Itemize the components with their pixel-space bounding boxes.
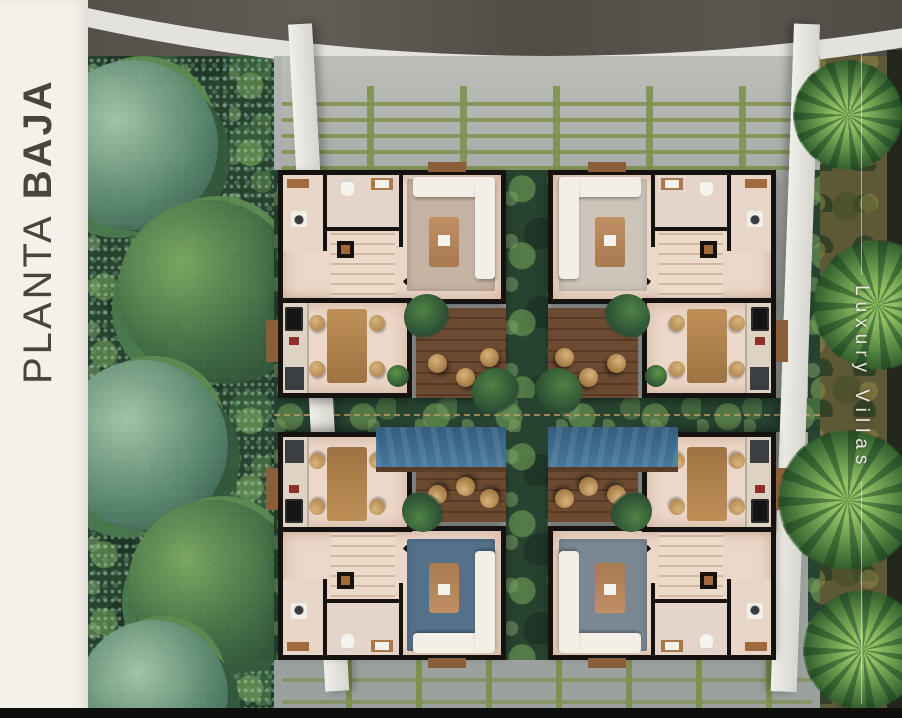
bathroom [327,599,403,655]
kitchen-counter [745,303,771,393]
pouf [579,477,598,496]
side-porch [266,320,278,362]
garden-bush [402,490,444,532]
interior-wall [399,583,403,603]
pouf [480,348,499,367]
lot-divider-line [274,414,820,416]
stair-planter [700,572,717,589]
rule-bottom [861,481,862,704]
dining-table [327,309,367,383]
shelf [745,179,767,188]
villa-bottom-right [548,432,776,660]
bottom-road-strip [0,708,902,718]
utility-room [727,175,771,251]
dining-chair [309,361,325,377]
sofa [559,177,579,279]
toilet [341,179,354,196]
stove [751,499,769,523]
tray [438,584,450,595]
title-space [16,199,60,213]
kitchen-counter [283,303,309,393]
pouf [555,348,574,367]
page-title: PLANTA BAJA [16,24,61,384]
shelf [745,642,767,651]
wine-cabinet [289,337,299,345]
tray [604,235,616,246]
rear-walkway [282,660,812,708]
staircase [659,533,723,597]
stove [751,307,769,331]
title-word-planta: PLANTA [16,213,60,384]
toilet [700,179,713,196]
toilet [341,634,354,651]
wood-deck [548,308,638,398]
villa-main-floor [278,526,506,660]
stove [285,307,303,331]
wood-deck [416,472,506,522]
dining-chair [369,315,385,331]
utility-room [283,175,327,251]
wine-cabinet [755,485,765,493]
toilet [700,634,713,651]
stair-planter [337,572,354,589]
villa-kitchen-wing [278,298,412,398]
pouf [555,489,574,508]
utility-room [283,579,327,655]
staircase [659,233,723,297]
title-sidebar: PLANTA BAJA [0,0,88,718]
shelf [287,642,309,651]
parking-court [282,56,812,174]
pouf [456,477,475,496]
wood-deck [416,308,506,398]
dining-chair [669,315,685,331]
staircase [331,533,395,597]
dining-table [687,309,727,383]
interior-wall [651,227,655,247]
washer [291,603,307,619]
fridge [285,367,304,390]
dining-chair [309,453,325,469]
watermark-rule: Luxury Villas [850,52,872,704]
interior-wall [651,583,655,603]
parking-stall-lines [282,90,812,174]
washer [747,603,763,619]
washer [747,211,763,227]
villa-main-floor [548,526,776,660]
bathroom [651,599,727,655]
dining-chair [669,361,685,377]
potted-plant [387,365,409,387]
garden-bush [534,368,582,416]
potted-plant [645,365,667,387]
stair-planter [337,241,354,258]
coffee-table [429,217,459,267]
aerial-render: Luxury Villas [88,0,902,718]
garden-bush [610,490,652,532]
garden-bush [404,294,450,340]
stair-planter [700,241,717,258]
garden-bush [604,294,650,340]
villa-kitchen-wing [642,298,776,398]
interior-wall [399,227,403,247]
side-porch [776,320,788,362]
dining-table [327,447,367,521]
sink [371,640,393,652]
bathroom [327,175,403,231]
grass-strip [553,86,560,174]
dining-chair [729,499,745,515]
villa-bottom-left [278,432,506,660]
entry-porch [428,162,466,172]
bathroom [651,175,727,231]
kitchen-counter [283,437,309,527]
dining-chair [729,361,745,377]
stove [285,499,303,523]
shelf [287,179,309,188]
grass-strip [739,86,746,174]
fridge [750,440,769,463]
entry-porch [588,658,626,668]
floor-plan-page: Luxury Villas PLANTA BAJA [0,0,902,718]
sofa [475,177,495,279]
dining-chair [309,315,325,331]
plunge-pool [376,427,506,472]
grass-strip [460,86,467,174]
rule-top [861,52,862,275]
side-porch [266,468,278,510]
dining-chair [729,453,745,469]
grass-strip [367,86,374,174]
villa-top-right [548,170,776,398]
sink [661,178,683,190]
dining-chair [369,361,385,377]
luxury-villas-label: Luxury Villas [850,275,872,480]
villa-top-left [278,170,506,398]
washer [291,211,307,227]
sink [661,640,683,652]
fridge [750,367,769,390]
villa-main-floor [548,170,776,304]
dining-chair [669,499,685,515]
plunge-pool [548,427,678,472]
sofa [475,551,495,653]
villa-main-floor [278,170,506,304]
tray [604,584,616,595]
pouf [480,489,499,508]
coffee-table [595,563,625,613]
staircase [331,233,395,297]
wine-cabinet [755,337,765,345]
pouf [579,368,598,387]
entry-porch [588,162,626,172]
palm-tree [793,60,902,170]
dining-chair [309,499,325,515]
pouf [607,354,626,373]
entry-porch [428,658,466,668]
fridge [285,440,304,463]
dining-chair [369,499,385,515]
coffee-table [595,217,625,267]
garden-bush [472,368,520,416]
dining-chair [729,315,745,331]
tray [438,235,450,246]
grass-strip [646,86,653,174]
coffee-table [429,563,459,613]
dining-table [687,447,727,521]
sink [371,178,393,190]
utility-room [727,579,771,655]
wood-deck [548,472,638,522]
title-word-baja: BAJA [16,78,60,199]
wine-cabinet [289,485,299,493]
kitchen-counter [745,437,771,527]
sofa [559,551,579,653]
pouf [428,354,447,373]
